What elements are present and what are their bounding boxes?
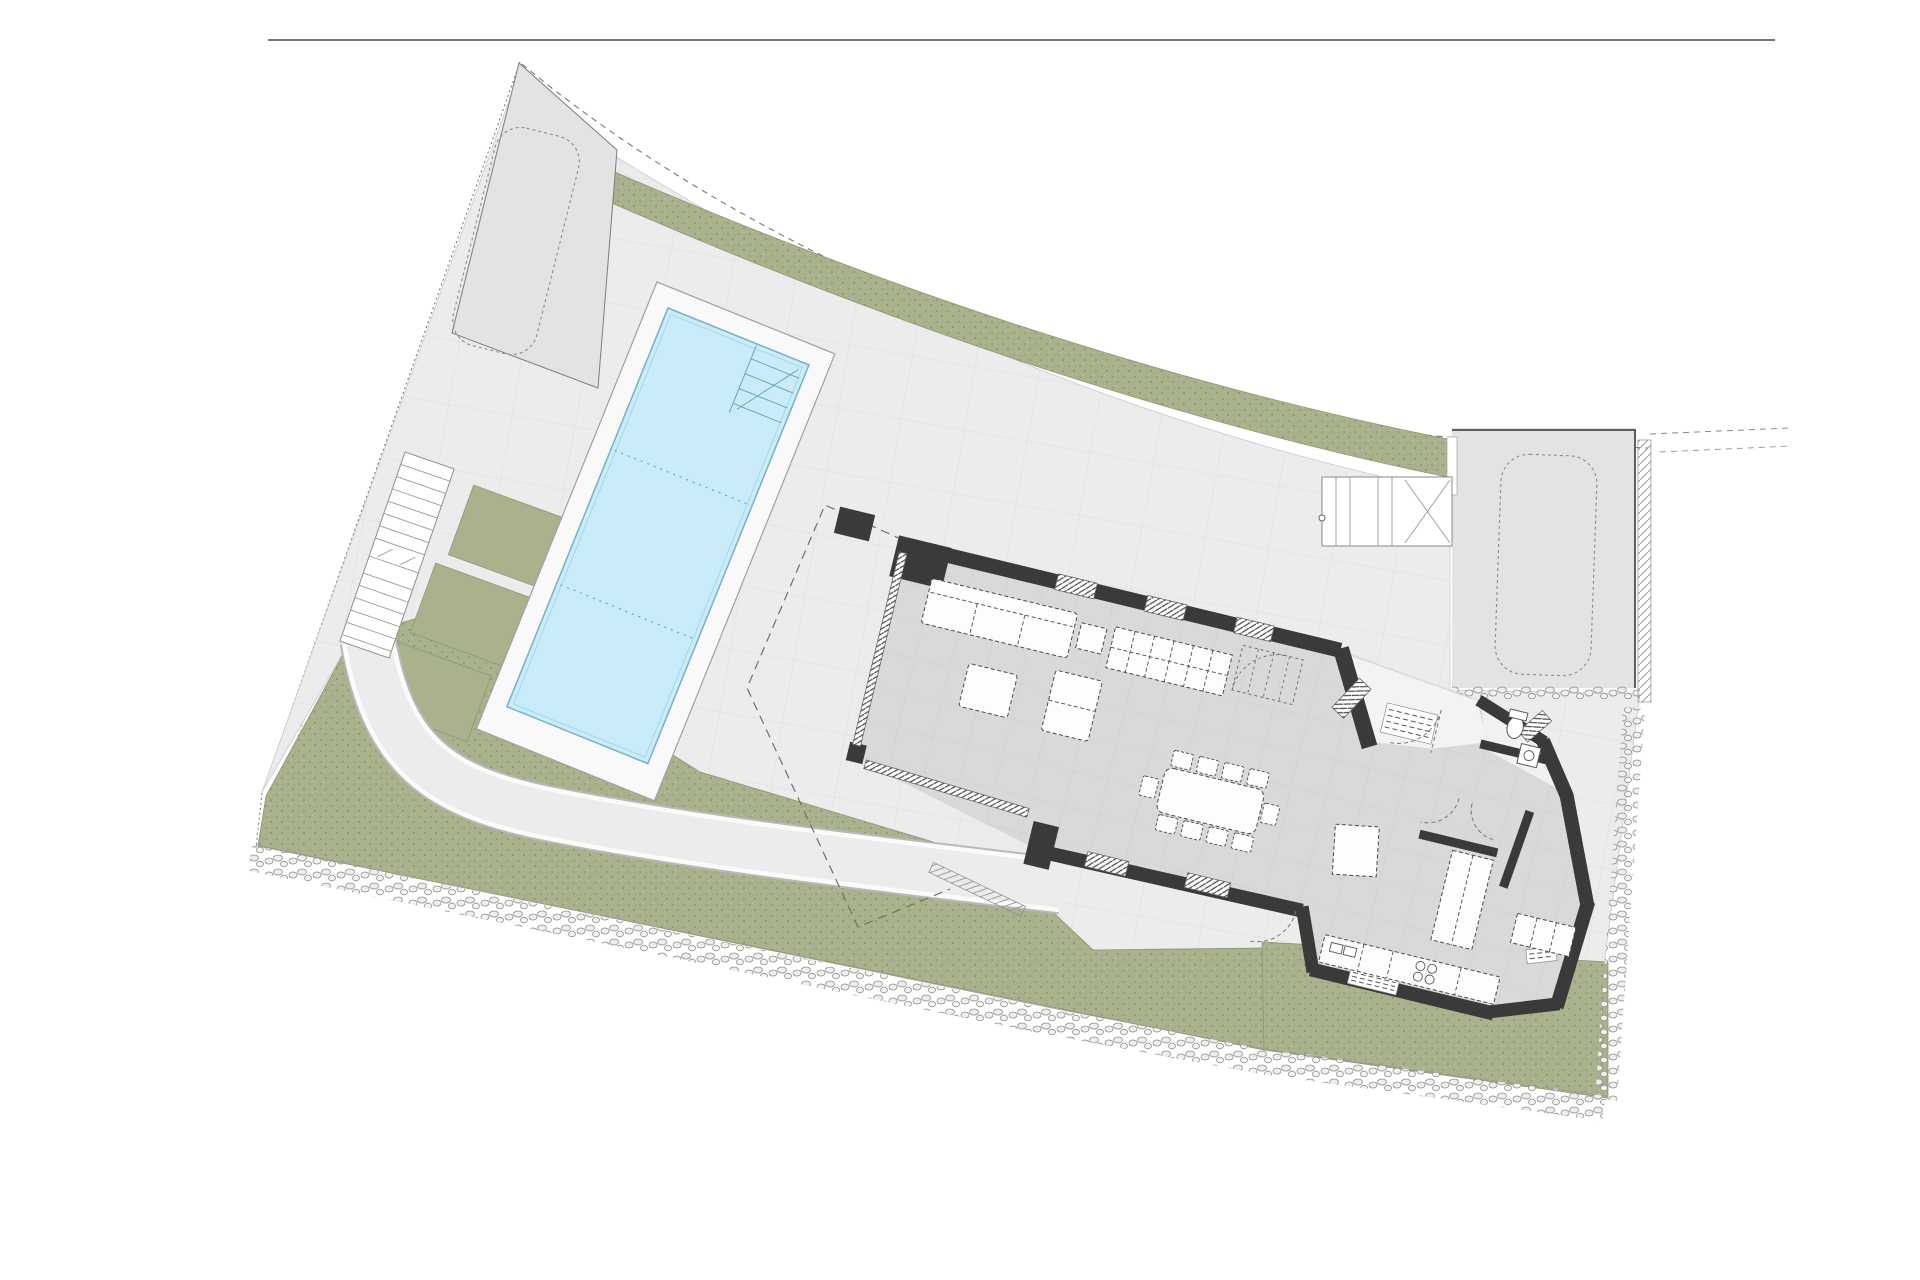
site-plan bbox=[0, 0, 1920, 1280]
parking-right bbox=[1452, 428, 1635, 688]
entry-stairs-body bbox=[1322, 477, 1452, 546]
curb-hatch-strip bbox=[1638, 440, 1651, 702]
closet bbox=[1332, 824, 1379, 877]
site-plan-svg bbox=[0, 0, 1920, 1280]
side-table bbox=[1076, 623, 1107, 654]
bathroom-sink bbox=[1517, 744, 1541, 768]
entry-stairs-marker bbox=[1319, 515, 1325, 521]
